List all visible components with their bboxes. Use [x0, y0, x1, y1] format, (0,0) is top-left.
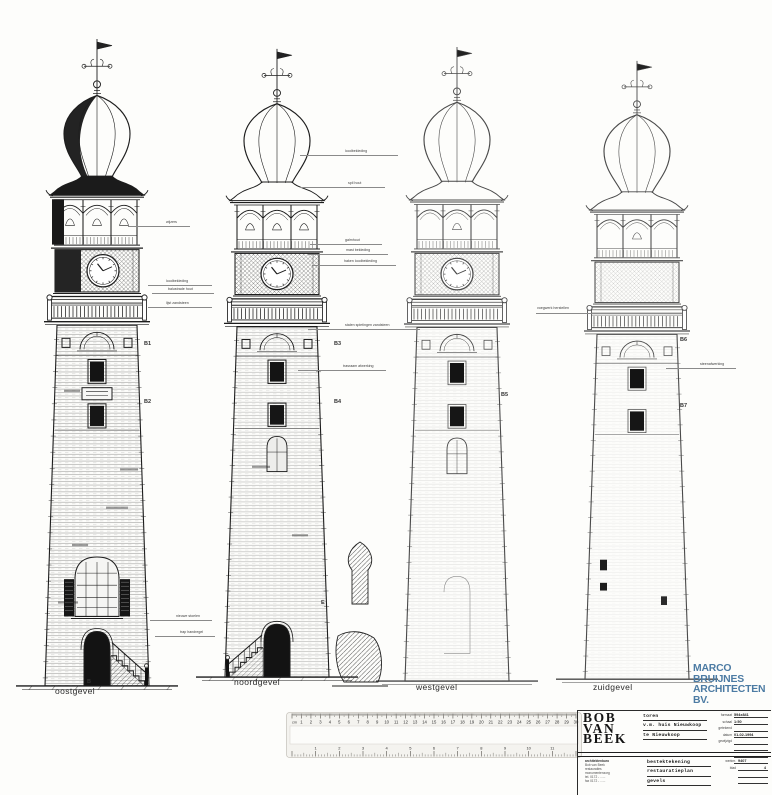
svg-text:26: 26	[536, 720, 541, 725]
title-field	[715, 753, 768, 758]
leader-line	[148, 307, 212, 308]
subject-line: bestektekening	[647, 760, 711, 767]
leader-line	[666, 368, 736, 369]
title-field	[719, 772, 768, 777]
stamp-line: BV.	[693, 696, 772, 707]
elevation-oostgevel-drawing	[2, 35, 192, 690]
field-value	[734, 753, 768, 758]
leader-line	[128, 226, 190, 227]
scale-ruler: cm12345678910111213141516171819202122232…	[286, 712, 582, 763]
field-value: 9407	[738, 759, 768, 764]
field-value: 594x841	[734, 713, 768, 718]
svg-text:14: 14	[422, 720, 427, 725]
leader-line	[308, 329, 420, 330]
svg-text:25: 25	[526, 720, 531, 725]
project-name-lines: torenv.m. huis Nieuwkoopte Nieuwkoop	[643, 713, 715, 742]
field-value	[738, 772, 768, 777]
reference-marker: E	[321, 600, 325, 606]
svg-text:19: 19	[470, 720, 475, 725]
elevation-westgevel-drawing	[362, 43, 552, 685]
field-label: schaal	[715, 720, 734, 725]
title-block-project-row: BOBVANBEEK torenv.m. huis Nieuwkoopte Ni…	[578, 711, 771, 752]
annotation-label: spil hout	[348, 181, 361, 185]
field-value: 01-02-1994	[734, 733, 768, 738]
svg-text:13: 13	[413, 720, 418, 725]
svg-text:24: 24	[517, 720, 522, 725]
annotation-label: stalen spietingen zandsteen	[345, 323, 390, 327]
elevation-label: westgevel	[416, 682, 457, 692]
subject-line: restauratieplan	[647, 769, 711, 776]
reference-marker: B	[87, 679, 91, 685]
field-label: datum	[715, 733, 734, 738]
field-value	[734, 726, 768, 731]
annotation-label: wijzers	[166, 220, 177, 224]
logo-line: BEEK	[583, 734, 643, 745]
svg-text:10: 10	[384, 720, 389, 725]
field-value	[734, 746, 768, 751]
reference-marker: B5	[501, 392, 508, 398]
svg-text:20: 20	[479, 720, 484, 725]
title-field: schaal 1:50	[715, 720, 768, 725]
svg-text:22: 22	[498, 720, 503, 725]
title-field: gewijzigd	[715, 739, 768, 744]
leader-line	[310, 244, 382, 245]
field-value	[734, 739, 768, 744]
annotation-label: nieuwe stoelen	[176, 614, 200, 618]
title-field: werknr. 9407	[719, 759, 768, 764]
annotation-label: mast bekleding	[346, 248, 370, 252]
annotation-label: lijst zandsteen	[166, 301, 189, 305]
annotation-label: loodbekleding	[166, 279, 188, 283]
annotation-label: loodbekleding	[345, 149, 367, 153]
reference-marker: B4	[334, 399, 341, 405]
field-label	[715, 753, 734, 758]
svg-text:29: 29	[564, 720, 569, 725]
firm-address: architektenburoBob van Beekrestauratiesm…	[578, 759, 647, 783]
field-value: 1:50	[734, 720, 768, 725]
svg-text:28: 28	[555, 720, 560, 725]
elevation-label: noordgevel	[234, 677, 280, 687]
field-label: formaat	[715, 713, 734, 718]
reference-marker: B1	[144, 341, 151, 347]
subject-lines: bestektekeningrestauratieplangevels	[647, 759, 719, 788]
field-label	[719, 779, 738, 784]
firm-logo: BOBVANBEEK	[578, 713, 643, 745]
title-field: formaat 594x841	[715, 713, 768, 718]
reference-marker: B2	[144, 399, 151, 405]
svg-text:cm: cm	[292, 721, 297, 725]
project-line: te Nieuwkoop	[643, 733, 707, 740]
leader-line	[312, 265, 396, 266]
leader-line	[300, 187, 385, 188]
svg-text:17: 17	[451, 720, 456, 725]
svg-text:10: 10	[526, 746, 531, 751]
address-line: fax 0172 - ......	[585, 780, 645, 784]
reference-marker: B6	[680, 337, 687, 343]
annotation-label: steenafwerking	[700, 362, 724, 366]
reference-marker: B3	[334, 341, 341, 347]
elevation-label: zuidgevel	[593, 682, 633, 692]
leader-line	[300, 155, 398, 156]
leader-line	[155, 636, 215, 637]
field-label	[719, 772, 738, 777]
field-label: gewijzigd	[715, 739, 734, 744]
svg-text:21: 21	[488, 720, 493, 725]
svg-text:11: 11	[394, 720, 399, 725]
leader-line	[298, 370, 386, 371]
field-label: blad	[719, 766, 738, 771]
stamp-line: MARCO	[693, 664, 772, 675]
project-line: toren	[643, 714, 707, 721]
title-field	[719, 779, 768, 784]
field-label: getekend	[715, 726, 734, 731]
title-block-subject-row: architektenburoBob van Beekrestauratiesm…	[578, 757, 771, 795]
field-label	[715, 746, 734, 751]
annotation-label: trasraam afwerking	[343, 364, 374, 368]
reference-marker: B7	[680, 403, 687, 409]
elevation-zuidgevel-drawing	[542, 57, 732, 683]
field-label: werknr.	[719, 759, 738, 764]
sheet-fields-2: werknr. 9407 blad 4	[719, 759, 771, 785]
leader-line	[308, 254, 388, 255]
svg-text:12: 12	[403, 720, 408, 725]
leader-line	[536, 313, 598, 314]
title-field	[715, 746, 768, 751]
elevation-label: oostgevel	[55, 686, 95, 696]
project-line: v.m. huis Nieuwkoop	[643, 723, 707, 730]
leader-line	[148, 285, 212, 286]
svg-text:27: 27	[545, 720, 550, 725]
annotation-label: trap handregel	[180, 630, 203, 634]
wall-section-cut	[330, 540, 390, 692]
leader-line	[150, 620, 212, 621]
annotation-label: voegwerk herstellen	[537, 306, 569, 310]
title-field: datum 01-02-1994	[715, 733, 768, 738]
drawing-sheet: oostgevelnoordgevelwestgevelzuidgevelBEB…	[0, 0, 772, 795]
annotation-label: balustrade hout	[168, 287, 193, 291]
field-value	[738, 779, 768, 784]
sheet-fields: formaat 594x841 schaal 1:50 getekend dat…	[715, 713, 771, 766]
title-block: BOBVANBEEK torenv.m. huis Nieuwkoopte Ni…	[577, 710, 771, 795]
svg-text:16: 16	[441, 720, 446, 725]
title-field: getekend	[715, 726, 768, 731]
subject-line: gevels	[647, 779, 711, 786]
annotation-label: galmhout	[345, 238, 360, 242]
architect-stamp: MARCOBRUIJNESARCHITECTENBV.	[693, 664, 772, 706]
svg-text:23: 23	[507, 720, 512, 725]
svg-text:18: 18	[460, 720, 465, 725]
title-field: blad 4	[719, 766, 768, 771]
svg-text:15: 15	[432, 720, 437, 725]
scale-ruler-graphic: cm12345678910111213141516171819202122232…	[286, 712, 582, 758]
field-value: 4	[738, 766, 768, 771]
annotation-label: haken loodbekleding	[344, 259, 377, 263]
leader-line	[152, 293, 214, 294]
